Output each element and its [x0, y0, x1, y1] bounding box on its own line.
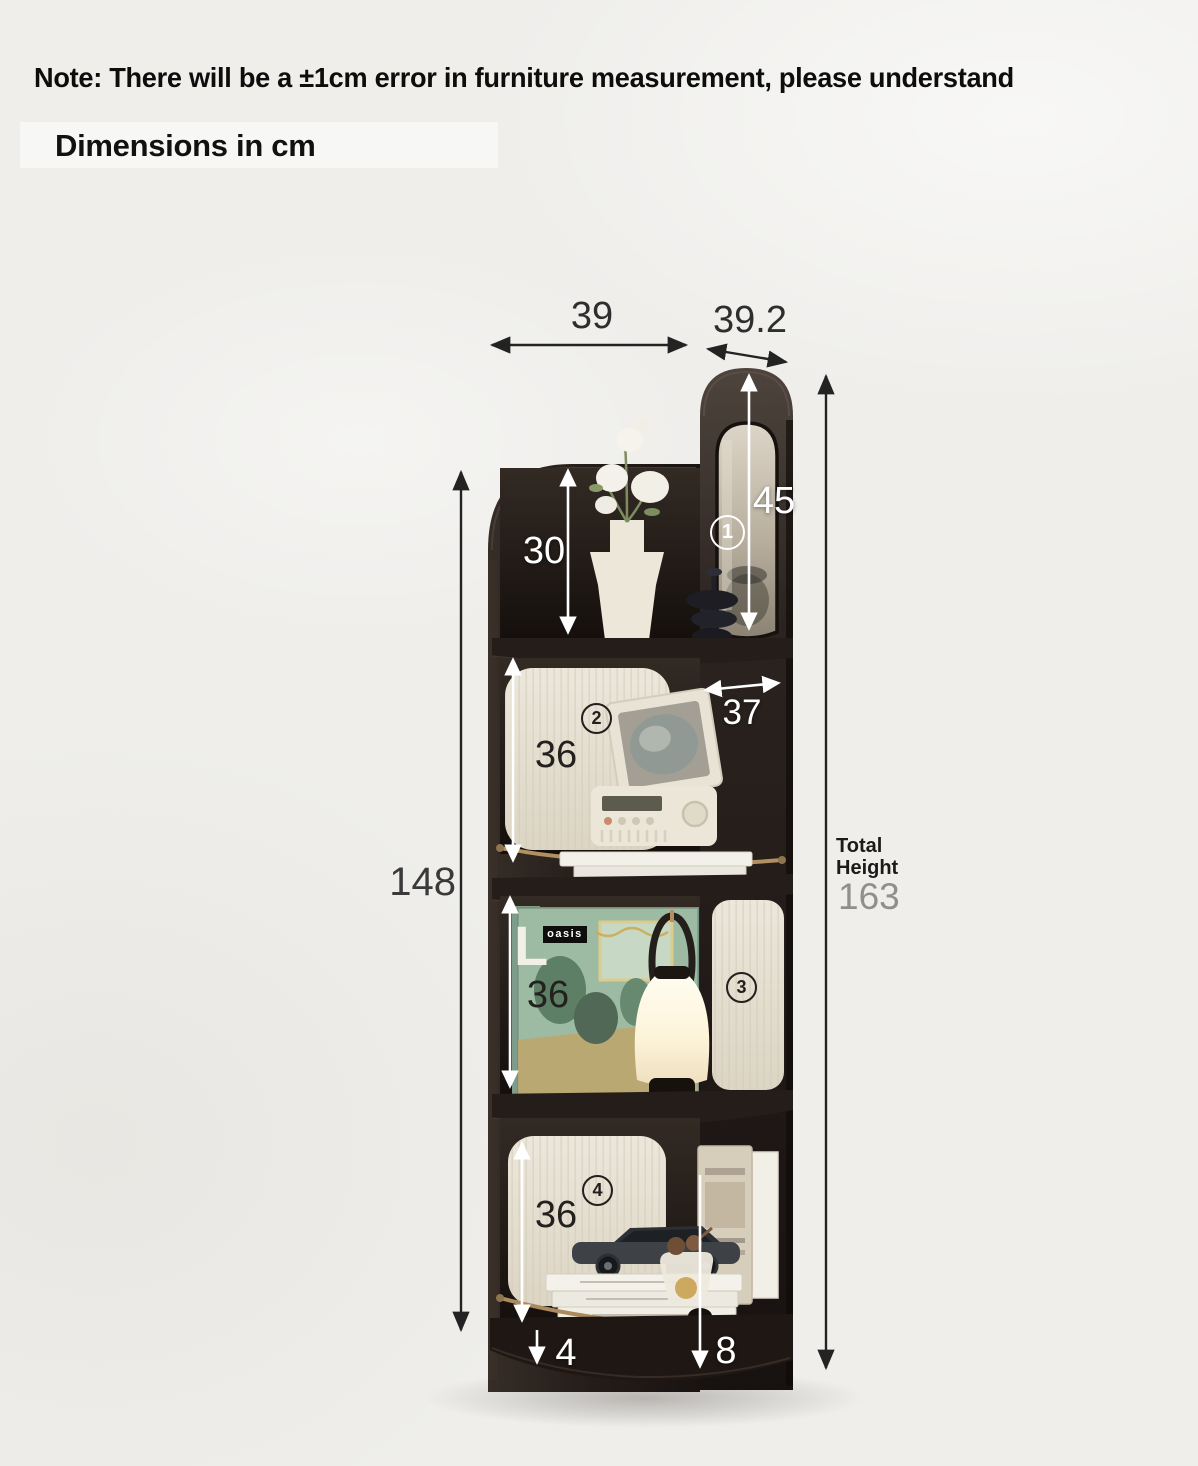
- note-text: Note: There will be a ±1cm error in furn…: [34, 62, 1062, 94]
- compartment-2: [500, 658, 723, 854]
- jewelry-mirror-box: [605, 688, 723, 801]
- dimension-sheet: { "note": "Note: There will be a ±1cm er…: [0, 0, 1198, 1466]
- fluted-panel-right: [712, 900, 784, 1090]
- compartment-3: [500, 896, 784, 1115]
- compartment-4: [500, 1118, 778, 1349]
- furniture-illustration: [0, 0, 1198, 1466]
- total-height-label: Total Height: [836, 835, 898, 880]
- total-height-value: 163: [838, 876, 900, 918]
- radio: [591, 786, 717, 846]
- page-title: Dimensions in cm: [55, 128, 316, 164]
